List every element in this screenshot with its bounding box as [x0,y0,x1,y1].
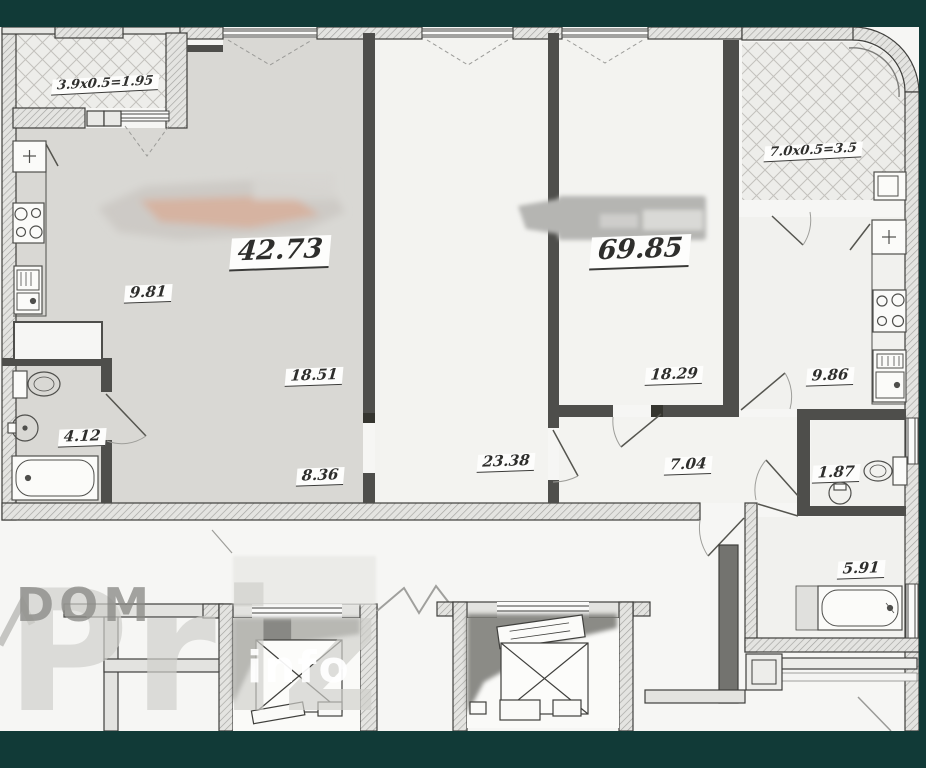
watermark-info: info [247,642,351,693]
sink-left-icon [14,266,42,314]
lobby-wall [719,545,738,703]
wardrobe-niche [14,322,102,360]
stove-left-icon [13,203,44,243]
area-label-living-left: 18.51 [285,367,344,387]
stove-right-icon [873,290,906,332]
area-label-bathroom-left: 4.12 [58,428,106,448]
area-label-bathroom-right: 5.91 [837,560,885,580]
balcony-left-area [16,34,166,108]
elevator-shaft-right [437,602,650,731]
area-label-room-right: 18.29 [645,366,704,386]
area-label-apartment-left: 42.73 [229,235,331,271]
area-label-kitchen-left: 9.81 [124,284,172,304]
fridge-left-icon [13,141,46,172]
frame-right-bar [919,0,926,768]
area-label-room-middle: 23.38 [477,453,536,473]
sink-right-icon [873,350,906,402]
watermark-dom: DOM [16,578,154,632]
area-label-wc-right: 1.87 [812,464,860,484]
bath-shelf [796,586,818,630]
fridge-right-icon [872,220,906,254]
area-label-hall-right: 7.04 [664,456,712,476]
bathtub-right-icon [818,586,902,630]
frame-top-bar [0,0,926,27]
balcony-ac-unit [874,172,906,200]
area-label-kitchen-right: 9.86 [806,367,854,387]
area-label-apartment-right: 69.85 [589,234,691,270]
balcony-left-door [87,111,121,126]
area-label-hall-left: 8.36 [296,467,344,487]
frame-bottom-bar [0,731,926,768]
floor-plan-screenshot: Priz DOM info 3.9x0.5=1.95 42.73 9.81 18… [0,0,926,768]
room-area-middle [375,38,548,503]
bathtub-left-icon [12,456,98,500]
